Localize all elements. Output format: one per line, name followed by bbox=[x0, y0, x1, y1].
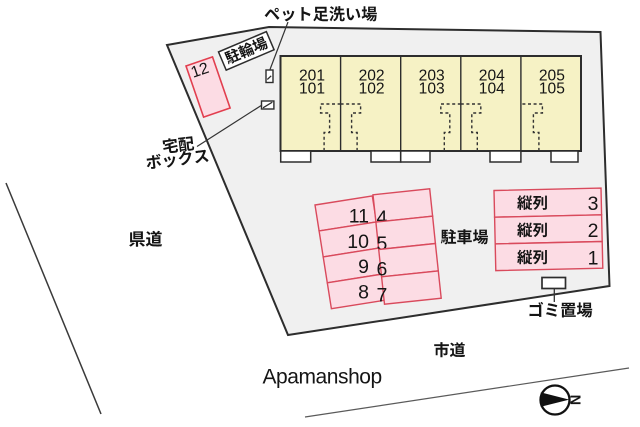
svg-text:205105: 205105 bbox=[539, 67, 565, 97]
svg-text:203103: 203103 bbox=[419, 67, 445, 97]
svg-text:2: 2 bbox=[588, 220, 599, 242]
svg-text:204104: 204104 bbox=[479, 67, 505, 97]
svg-text:7: 7 bbox=[377, 285, 388, 307]
svg-text:1: 1 bbox=[588, 247, 599, 269]
svg-text:202102: 202102 bbox=[359, 67, 385, 97]
svg-text:9: 9 bbox=[358, 256, 369, 278]
svg-text:Apamanshop: Apamanshop bbox=[263, 366, 382, 389]
svg-text:201101: 201101 bbox=[299, 67, 325, 97]
svg-text:3: 3 bbox=[588, 193, 599, 215]
svg-text:8: 8 bbox=[358, 281, 369, 303]
svg-text:N: N bbox=[567, 395, 583, 405]
